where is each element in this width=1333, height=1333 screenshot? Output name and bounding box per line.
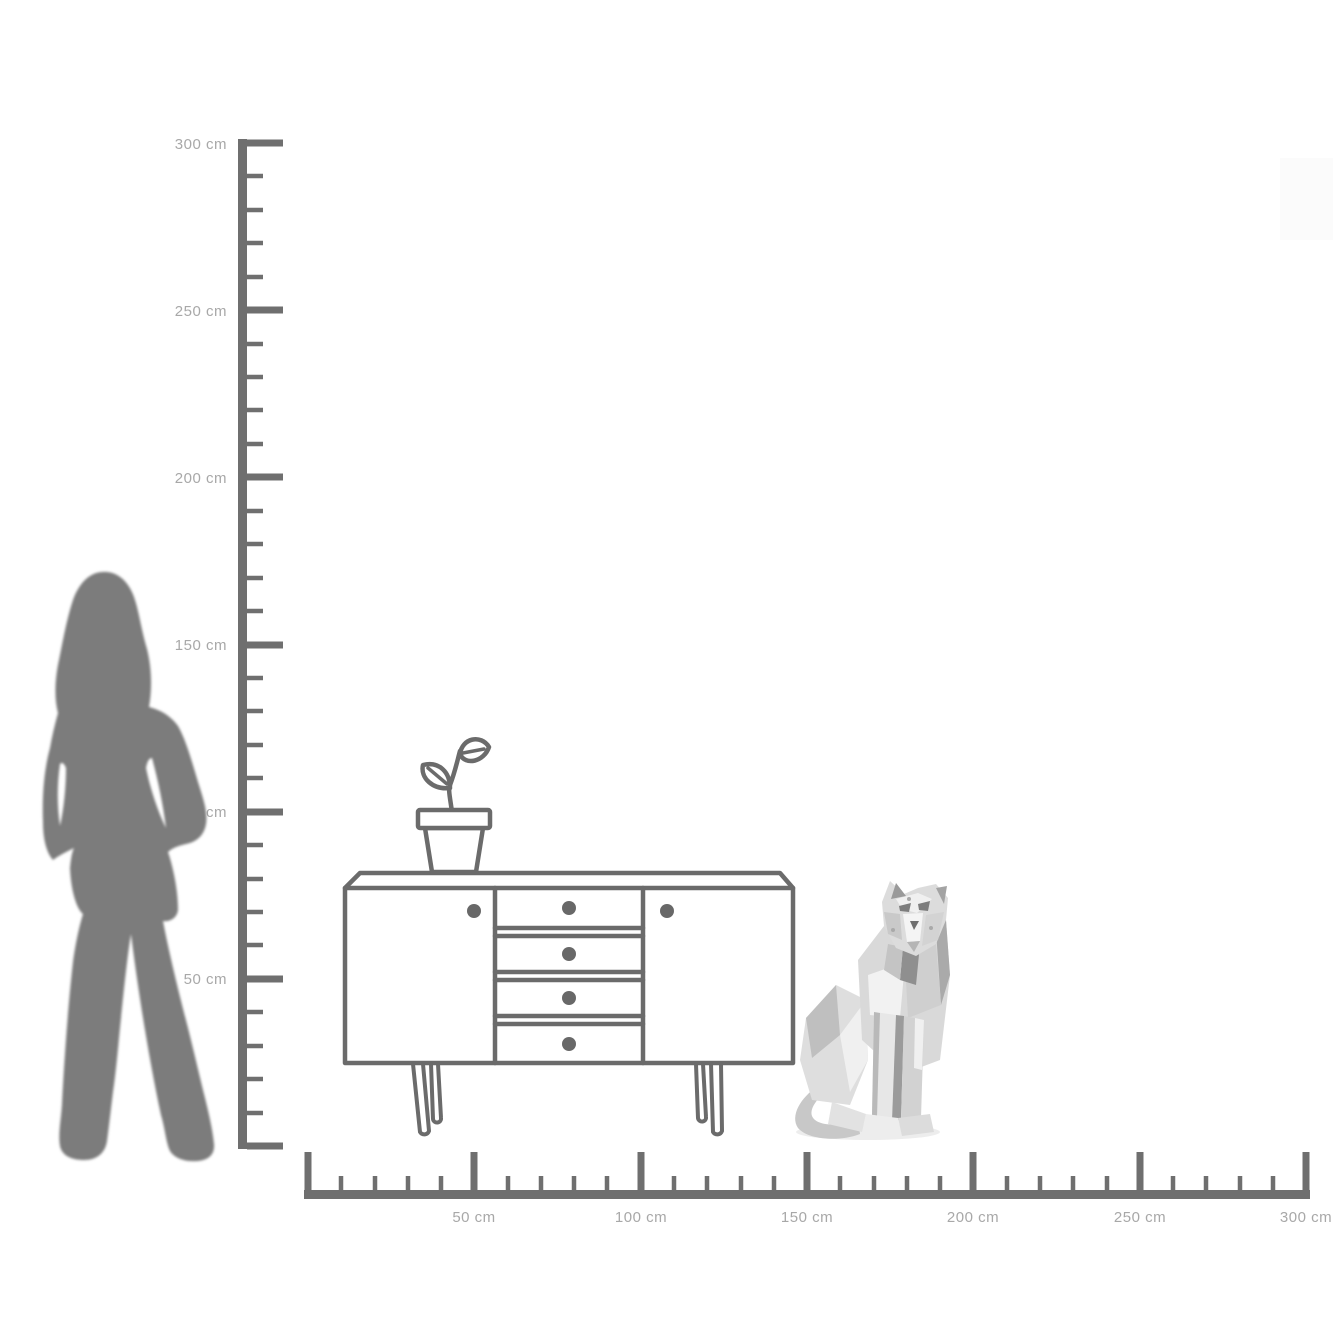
panther-figurine [795,881,950,1140]
h-ruler-label-150: 150 cm [781,1209,833,1226]
panther-spot-1 [891,928,895,932]
h-ruler-label-300: 300 cm [1280,1209,1332,1226]
horizontal-ruler-major-ticks [308,1152,1306,1190]
v-ruler-label-300: 300 cm [175,136,227,153]
woman-silhouette [43,572,214,1161]
drawer-knob-2 [562,947,576,961]
v-ruler-label-250: 250 cm [175,303,227,320]
vertical-ruler: 300 cm 250 cm 200 cm 150 cm 100 cm 50 cm [175,136,283,1149]
right-door-knob [660,904,674,918]
plant-pot-body [425,828,483,872]
vertical-ruler-major-ticks [247,143,283,1146]
horizontal-ruler-bar [304,1190,1310,1199]
sideboard-right-leg [696,1064,722,1134]
background-artifact [1280,158,1333,240]
sideboard-drawing [345,873,793,1134]
plant-drawing [418,739,490,872]
h-ruler-label-200: 200 cm [947,1209,999,1226]
diagram-canvas: 300 cm 250 cm 200 cm 150 cm 100 cm 50 cm… [0,0,1333,1333]
drawer-knob-3 [562,991,576,1005]
h-ruler-label-100: 100 cm [615,1209,667,1226]
v-ruler-label-50: 50 cm [184,971,227,988]
plant-pot-rim [418,810,490,828]
v-ruler-label-200: 200 cm [175,470,227,487]
drawer-knob-4 [562,1037,576,1051]
left-door-knob [467,904,481,918]
woman-silhouette-shape [43,572,214,1161]
h-ruler-label-250: 250 cm [1114,1209,1166,1226]
h-ruler-label-50: 50 cm [452,1209,495,1226]
horizontal-ruler: 50 cm 100 cm 150 cm 200 cm 250 cm 300 cm [304,1152,1332,1226]
size-comparison-diagram: 300 cm 250 cm 200 cm 150 cm 100 cm 50 cm… [0,0,1333,1333]
sideboard-left-leg [413,1064,441,1134]
panther-spot-2 [929,926,933,930]
v-ruler-label-150: 150 cm [175,637,227,654]
panther-spot-3 [907,897,911,901]
drawer-knob-1 [562,901,576,915]
vertical-ruler-bar [238,139,247,1149]
